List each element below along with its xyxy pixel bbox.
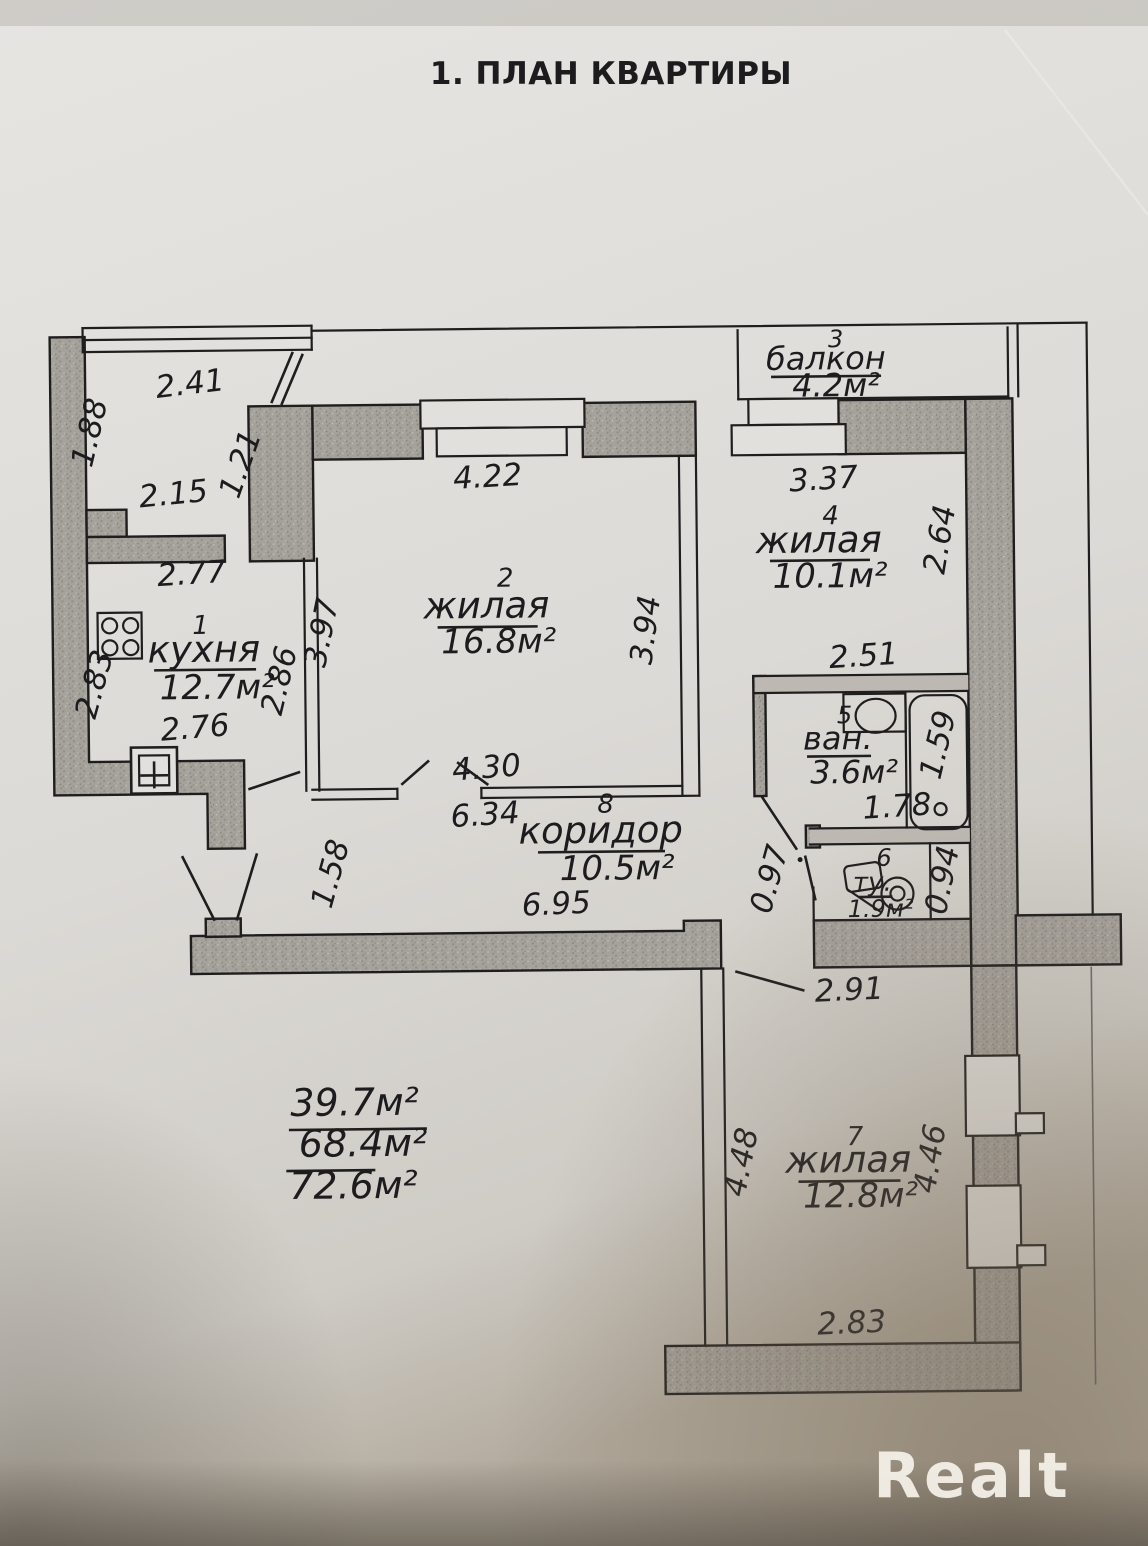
scan-shadows [0, 0, 1148, 1546]
realt-watermark: Realt [873, 1439, 1071, 1512]
floor-plan-svg: 1. ПЛАН КВАРТИРЫ [0, 0, 1148, 1546]
scanned-floor-plan-page: 1. ПЛАН КВАРТИРЫ [0, 0, 1148, 1546]
